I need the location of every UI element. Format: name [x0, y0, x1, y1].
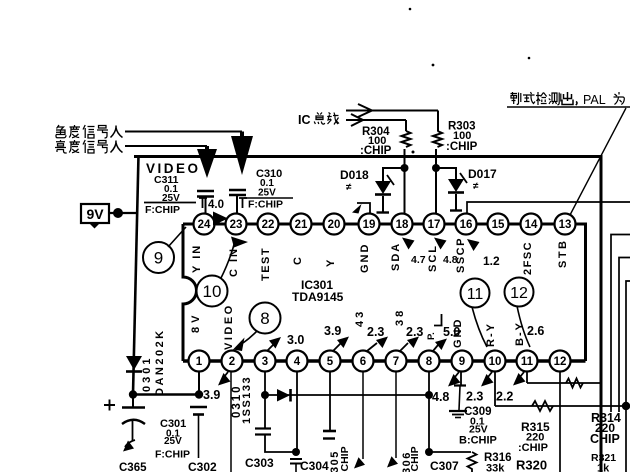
svg-text:SDA: SDA	[390, 242, 402, 271]
svg-text:PAL: PAL	[583, 93, 606, 107]
svg-text:B-Y: B-Y	[514, 321, 526, 346]
svg-text:5: 5	[327, 356, 334, 368]
svg-text:15: 15	[492, 219, 505, 231]
svg-text:F:CHIP: F:CHIP	[145, 204, 180, 216]
svg-text:13: 13	[559, 219, 572, 231]
svg-text:CHIP: CHIP	[590, 432, 620, 446]
svg-text:21: 21	[295, 219, 308, 231]
svg-text:TDA9145: TDA9145	[292, 290, 344, 304]
svg-text:R-Y: R-Y	[485, 322, 497, 347]
svg-text:≠: ≠	[346, 182, 352, 193]
svg-text:1: 1	[196, 356, 203, 368]
svg-text:25V: 25V	[164, 436, 182, 447]
svg-text:C303: C303	[245, 456, 274, 470]
svg-text:9: 9	[154, 249, 163, 268]
svg-text:33k: 33k	[486, 463, 505, 472]
svg-text:22: 22	[262, 219, 275, 231]
svg-text:38: 38	[394, 308, 406, 326]
svg-text:9V: 9V	[86, 206, 104, 222]
svg-text:7: 7	[393, 356, 399, 368]
svg-text:11: 11	[521, 356, 534, 368]
svg-text:10: 10	[203, 282, 222, 301]
svg-text:Y: Y	[325, 259, 337, 267]
svg-text::CHIP: :CHIP	[339, 446, 351, 472]
svg-text:12: 12	[554, 356, 567, 368]
svg-text:GND: GND	[359, 243, 371, 273]
svg-text:2.2: 2.2	[496, 390, 513, 404]
svg-text::CHIP: :CHIP	[409, 446, 421, 472]
svg-text:6: 6	[360, 356, 366, 368]
svg-text:0301: 0301	[141, 356, 153, 392]
svg-text:C302: C302	[188, 460, 217, 472]
svg-text:3: 3	[262, 356, 268, 368]
svg-text:1SS133: 1SS133	[241, 376, 253, 424]
svg-text:4.0: 4.0	[208, 199, 224, 211]
svg-text:3.9: 3.9	[203, 388, 220, 402]
svg-text:3.0: 3.0	[287, 333, 304, 347]
svg-text::CHIP: :CHIP	[518, 442, 548, 454]
svg-text:10: 10	[489, 356, 502, 368]
svg-text:C IN: C IN	[228, 247, 240, 277]
svg-text:16: 16	[460, 219, 473, 231]
svg-text:4.7: 4.7	[411, 254, 426, 266]
svg-text:2: 2	[229, 356, 235, 368]
svg-text:24: 24	[198, 219, 211, 231]
svg-text:23: 23	[230, 219, 243, 231]
svg-text:8: 8	[426, 356, 433, 368]
svg-text:IC: IC	[298, 113, 311, 127]
svg-text:4: 4	[294, 356, 301, 368]
svg-text:P.: P.	[426, 332, 437, 340]
svg-text:2.3: 2.3	[367, 325, 384, 339]
svg-text:C: C	[292, 257, 304, 265]
svg-text:5.0: 5.0	[443, 325, 460, 339]
svg-text:D018: D018	[340, 168, 369, 182]
svg-text:VIDEO: VIDEO	[223, 303, 235, 350]
svg-text:25V: 25V	[258, 188, 276, 199]
svg-text::CHIP: :CHIP	[360, 145, 392, 157]
svg-text:1.2: 1.2	[483, 254, 500, 268]
svg-text:14: 14	[525, 219, 538, 231]
svg-text:D017: D017	[468, 167, 497, 181]
svg-text:F:CHIP: F:CHIP	[248, 199, 283, 211]
svg-text:9: 9	[459, 356, 465, 368]
svg-text:DAN202K: DAN202K	[154, 328, 166, 396]
svg-text:2FSC: 2FSC	[522, 241, 534, 275]
svg-text:STB: STB	[557, 239, 569, 269]
svg-text::CHIP: :CHIP	[446, 141, 478, 153]
svg-text:20: 20	[328, 219, 341, 231]
svg-text:SCL: SCL	[427, 244, 439, 272]
svg-text:17: 17	[428, 219, 441, 231]
svg-text:2.3: 2.3	[406, 325, 423, 339]
svg-text:18: 18	[396, 219, 409, 231]
svg-text:≠: ≠	[473, 181, 479, 192]
svg-text:2.3: 2.3	[466, 390, 483, 404]
svg-text:3.9: 3.9	[324, 324, 341, 338]
svg-text:C365: C365	[119, 462, 147, 472]
svg-text:11: 11	[467, 286, 484, 303]
svg-text:TEST: TEST	[260, 247, 272, 281]
svg-text:C304: C304	[300, 459, 329, 472]
svg-text:1k: 1k	[597, 463, 610, 472]
svg-text:12: 12	[510, 285, 528, 302]
svg-text:19: 19	[363, 219, 376, 231]
svg-text:R320: R320	[516, 458, 547, 472]
svg-text:4.8: 4.8	[443, 254, 458, 266]
svg-text:43: 43	[354, 309, 366, 327]
svg-text:Y IN: Y IN	[191, 244, 203, 273]
svg-text:8V: 8V	[190, 312, 202, 333]
svg-text:8: 8	[260, 309, 269, 328]
svg-text:2.6: 2.6	[527, 324, 544, 338]
svg-text:C307: C307	[430, 459, 459, 472]
svg-text:4.8: 4.8	[432, 390, 449, 404]
svg-text:F:CHIP: F:CHIP	[155, 449, 190, 461]
svg-text:B:CHIP: B:CHIP	[459, 435, 497, 447]
